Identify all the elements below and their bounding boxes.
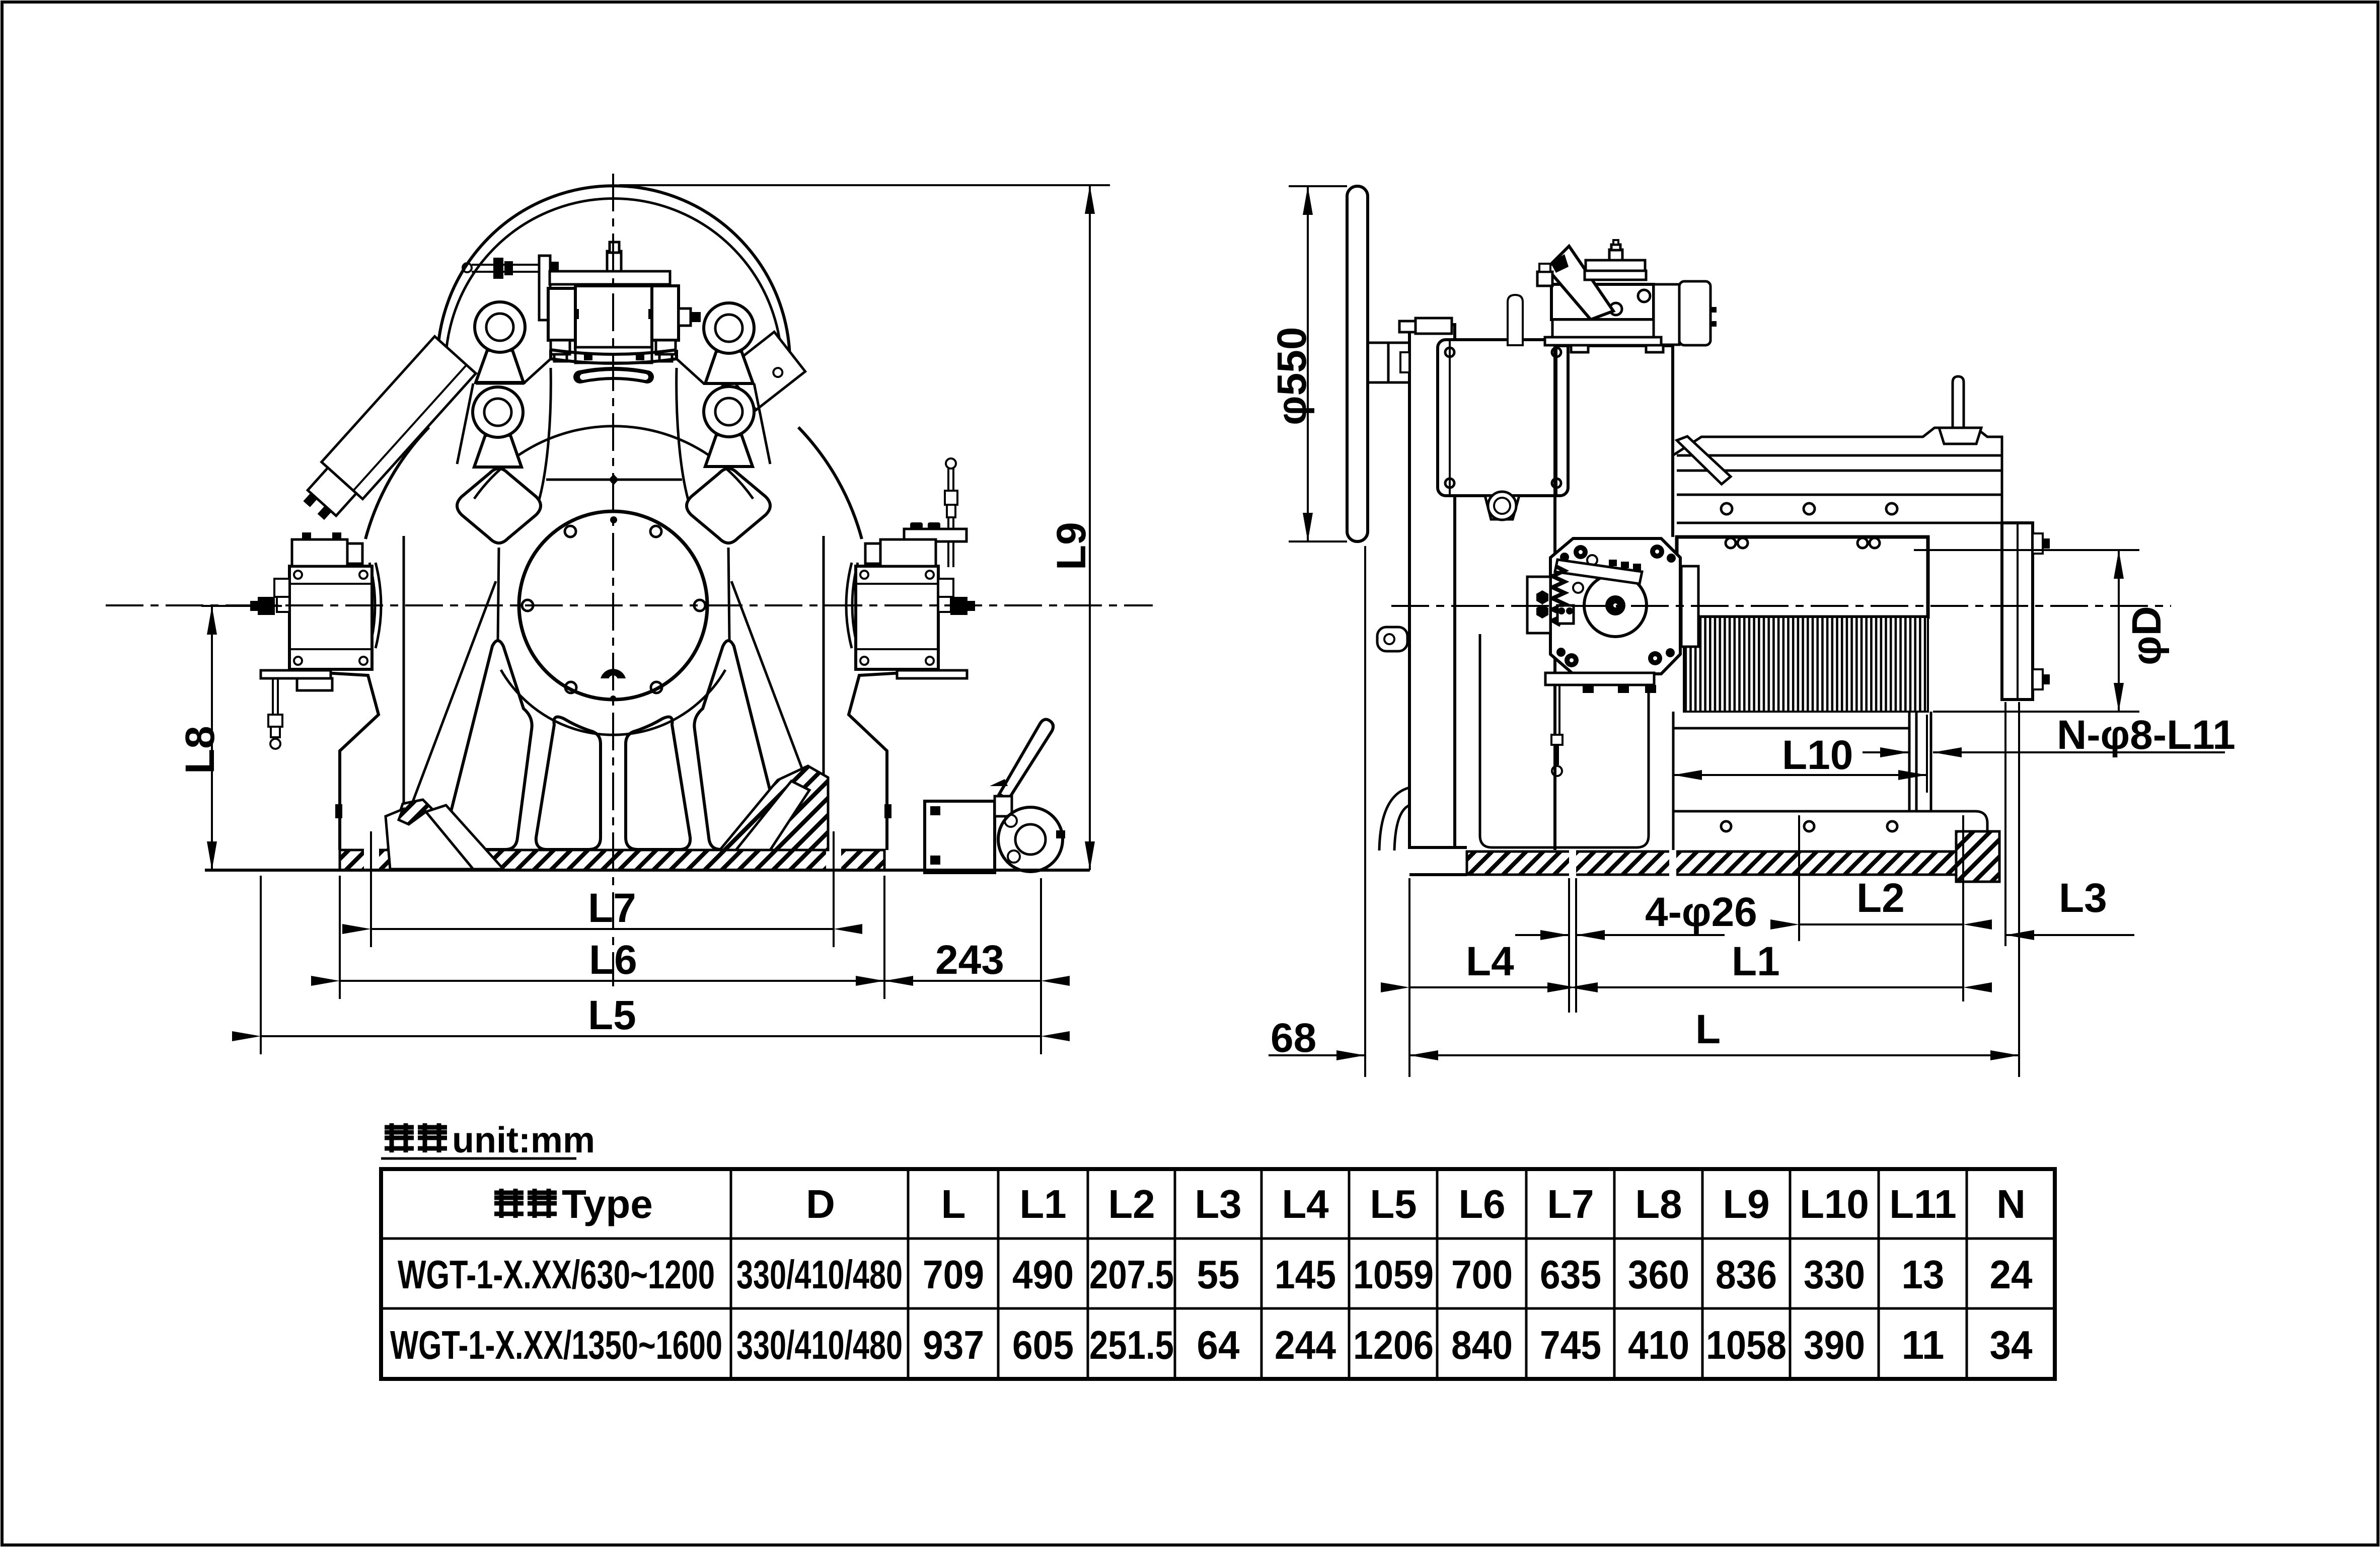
svg-text:WGT-1-X.XX/1350~1600: WGT-1-X.XX/1350~1600 xyxy=(390,1323,722,1367)
svg-text:330: 330 xyxy=(1804,1252,1865,1297)
svg-text:207.5: 207.5 xyxy=(1089,1252,1174,1297)
svg-text:243: 243 xyxy=(935,937,1004,983)
svg-text:unit:mm: unit:mm xyxy=(452,1120,595,1161)
svg-text:13: 13 xyxy=(1902,1252,1945,1297)
svg-text:840: 840 xyxy=(1451,1323,1513,1367)
svg-text:68: 68 xyxy=(1271,1015,1316,1061)
svg-text:L2: L2 xyxy=(1856,875,1905,921)
svg-text:330/410/480: 330/410/480 xyxy=(736,1323,903,1367)
svg-text:L3: L3 xyxy=(2059,875,2107,921)
svg-text:L: L xyxy=(941,1182,966,1226)
svg-text:937: 937 xyxy=(923,1323,984,1367)
svg-text:L4: L4 xyxy=(1282,1182,1329,1226)
svg-text:N: N xyxy=(1996,1182,2026,1226)
svg-text:55: 55 xyxy=(1197,1252,1240,1297)
svg-text:L1: L1 xyxy=(1732,939,1780,984)
svg-text:1206: 1206 xyxy=(1353,1323,1434,1367)
svg-text:Type: Type xyxy=(562,1182,653,1226)
svg-text:L1: L1 xyxy=(1019,1182,1066,1226)
svg-text:L: L xyxy=(1695,1007,1721,1052)
svg-text:L11: L11 xyxy=(1889,1182,1956,1226)
svg-text:L9: L9 xyxy=(1723,1182,1769,1226)
svg-text:410: 410 xyxy=(1628,1323,1689,1367)
svg-text:φ550: φ550 xyxy=(1269,327,1315,425)
svg-text:4-φ26: 4-φ26 xyxy=(1645,889,1757,935)
svg-text:34: 34 xyxy=(1990,1323,2033,1367)
svg-text:64: 64 xyxy=(1197,1323,1240,1367)
svg-text:L7: L7 xyxy=(588,885,636,931)
svg-text:390: 390 xyxy=(1804,1323,1865,1367)
svg-text:L10: L10 xyxy=(1782,732,1853,778)
svg-text:φD: φD xyxy=(2124,606,2170,665)
svg-text:330/410/480: 330/410/480 xyxy=(736,1252,903,1297)
svg-text:251.5: 251.5 xyxy=(1089,1323,1174,1367)
svg-text:1058: 1058 xyxy=(1706,1323,1787,1367)
svg-text:L10: L10 xyxy=(1800,1182,1869,1226)
svg-text:L7: L7 xyxy=(1547,1182,1594,1226)
svg-text:635: 635 xyxy=(1540,1252,1601,1297)
svg-text:L8: L8 xyxy=(177,726,223,774)
svg-text:L5: L5 xyxy=(1370,1182,1417,1226)
svg-text:N-φ8-L11: N-φ8-L11 xyxy=(2057,712,2236,758)
svg-text:145: 145 xyxy=(1275,1252,1336,1297)
svg-text:L2: L2 xyxy=(1108,1182,1155,1226)
svg-text:244: 244 xyxy=(1275,1323,1336,1367)
svg-text:D: D xyxy=(806,1182,835,1226)
svg-text:L6: L6 xyxy=(1458,1182,1505,1226)
svg-text:836: 836 xyxy=(1716,1252,1777,1297)
svg-text:WGT-1-X.XX/630~1200: WGT-1-X.XX/630~1200 xyxy=(398,1252,715,1297)
svg-text:605: 605 xyxy=(1012,1323,1074,1367)
svg-text:745: 745 xyxy=(1540,1323,1601,1367)
svg-text:11: 11 xyxy=(1902,1323,1945,1367)
svg-text:700: 700 xyxy=(1451,1252,1513,1297)
svg-text:L4: L4 xyxy=(1466,939,1514,984)
svg-text:L8: L8 xyxy=(1635,1182,1682,1226)
svg-text:L9: L9 xyxy=(1049,522,1094,570)
svg-text:360: 360 xyxy=(1628,1252,1689,1297)
svg-text:709: 709 xyxy=(923,1252,984,1297)
svg-text:1059: 1059 xyxy=(1353,1252,1434,1297)
svg-text:24: 24 xyxy=(1990,1252,2033,1297)
svg-text:L3: L3 xyxy=(1195,1182,1241,1226)
svg-text:L5: L5 xyxy=(588,992,636,1038)
svg-text:490: 490 xyxy=(1012,1252,1074,1297)
